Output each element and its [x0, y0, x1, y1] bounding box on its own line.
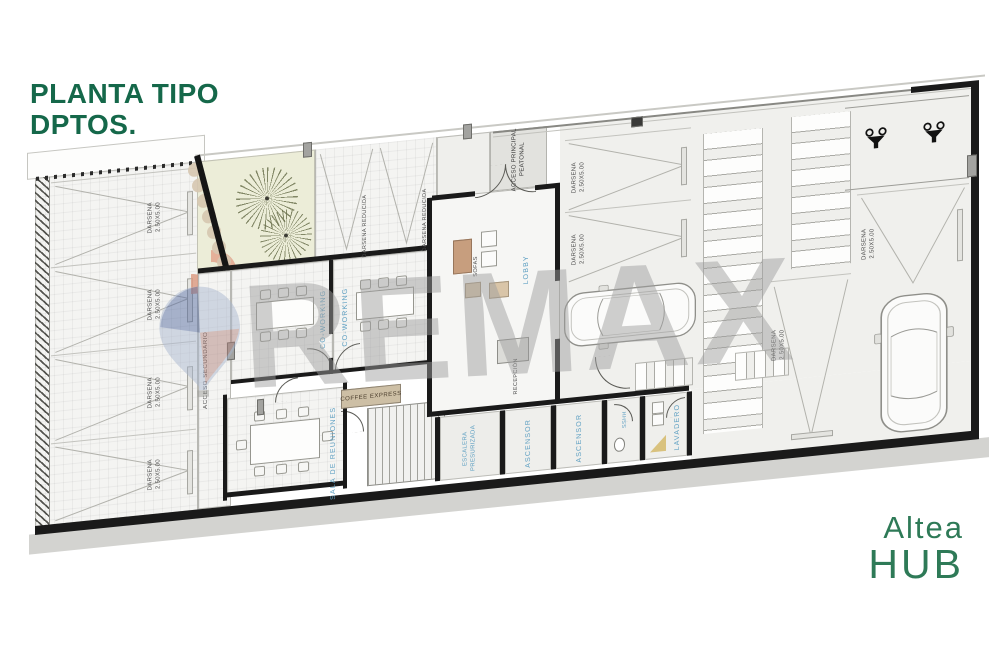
- parking-space-reduced: DARSENA REDUCIDA: [378, 139, 435, 251]
- parking-chevron: [51, 169, 196, 269]
- altea-hub-logo: Altea HUB: [868, 512, 964, 585]
- room-elevator-1: ASCENSOR: [505, 406, 551, 475]
- wall: [555, 339, 560, 404]
- room-laundry: LAVADERO: [645, 392, 687, 460]
- main-access-label: ACCESO PRINCIPALPEATONAL: [512, 127, 527, 193]
- parking-space: DARSENA2.50X5.00: [771, 273, 851, 448]
- room-pressurized-stair-label: ESCALERAPRESURIZADA: [463, 416, 478, 482]
- parking-zone-left: DARSENA2.50X5.00 DARSENA2.50X5.00 DARSEN…: [35, 161, 198, 527]
- wall: [435, 417, 440, 482]
- room-laundry-label: LAVADERO: [674, 403, 681, 450]
- wall: [687, 391, 692, 456]
- wall: [551, 405, 556, 470]
- room-meeting-label: SALA DE REUNIONES: [330, 406, 337, 500]
- door-arc: [275, 377, 298, 402]
- parking-space-label: DARSENA2.50X5.00: [862, 211, 877, 277]
- table: [356, 287, 414, 321]
- sofa: [453, 239, 472, 275]
- parking-space-label: DARSENA REDUCIDA: [422, 188, 428, 252]
- parking-space-label: DARSENA2.50X5.00: [148, 360, 163, 426]
- parking-space-label: DARSENA2.50X5.00: [148, 185, 163, 251]
- room-lobby: SOFAS LOBBY RECEPCIÓN: [430, 185, 560, 416]
- meeting-table: [250, 418, 320, 465]
- room-bathroom: SSHH: [607, 397, 640, 464]
- parking-space: DARSENA2.50X5.00: [565, 199, 691, 285]
- wall: [602, 400, 607, 465]
- ramp-hatch-column: [703, 128, 763, 434]
- parking-space-reduced: DARSENA REDUCIDA: [318, 145, 375, 257]
- parking-space: DARSENA2.50X5.00: [51, 341, 196, 445]
- parking-chevron: [51, 430, 196, 525]
- coffee-express-label: COFFEE EXPRESS: [340, 390, 401, 402]
- wall: [640, 396, 645, 461]
- ramp-hatch-column: [791, 111, 851, 269]
- room-lobby-label: LOBBY: [523, 255, 530, 285]
- room-coworking-label: CO-WORKING: [320, 289, 327, 349]
- parking-chevron: [51, 342, 196, 445]
- page-title-line1: PLANTA TIPO: [30, 78, 219, 109]
- parking-space-label: DARSENA REDUCIDA: [362, 194, 368, 258]
- retaining-wall-hatch: [35, 176, 50, 528]
- sofas-label: SOFAS: [473, 256, 479, 277]
- wall: [555, 185, 560, 282]
- room-coworking-label: CO-WORKING: [342, 287, 349, 347]
- page-title: PLANTA TIPO DPTOS.: [30, 78, 219, 141]
- table: [256, 297, 314, 331]
- floor-plan: DARSENA2.50X5.00 DARSENA2.50X5.00 DARSEN…: [35, 82, 985, 556]
- room-elevator-label: ASCENSOR: [576, 413, 583, 463]
- diagonal-wall: [197, 152, 229, 281]
- parking-chevron: [51, 254, 196, 357]
- parking-space: DARSENA2.50X5.00: [51, 168, 196, 269]
- page: PLANTA TIPO DPTOS. DARSENA2.50X5.00: [0, 0, 1000, 667]
- secondary-access-label: ACCESO SECUNDARIO: [203, 331, 209, 409]
- perimeter-wall-right: [971, 82, 979, 435]
- parking-zone-reduced: DARSENA REDUCIDA DARSENA REDUCIDA: [315, 137, 437, 261]
- wall: [223, 394, 227, 500]
- motorcycle-icon: [921, 119, 947, 148]
- altea-logo-line2: HUB: [868, 544, 964, 585]
- room-meeting: SALA DE REUNIONES: [227, 387, 345, 497]
- motorcycle-icon: [863, 125, 889, 154]
- parking-space-label: DARSENA2.50X5.00: [572, 144, 587, 210]
- wall: [329, 260, 333, 334]
- reception-label: RECEPCIÓN: [513, 358, 519, 395]
- parking-space: DARSENA2.50X5.00: [51, 429, 196, 525]
- motorcycle-parking: [845, 95, 969, 192]
- parking-space-label: DARSENA2.50X5.00: [148, 442, 163, 508]
- parking-space: DARSENA2.50X5.00: [857, 183, 969, 293]
- parking-space-label: DARSENA2.50X5.00: [772, 312, 787, 378]
- parking-space-label: DARSENA2.50X5.00: [148, 272, 163, 338]
- laundry-corner: [650, 435, 666, 453]
- parking-space: DARSENA2.50X5.00: [51, 253, 196, 357]
- parking-space-label: DARSENA2.50X5.00: [572, 216, 587, 282]
- car-icon: [873, 287, 955, 439]
- wall: [500, 410, 505, 475]
- room-elevator-label: ASCENSOR: [525, 419, 532, 469]
- armchair: [481, 250, 497, 268]
- toilet-icon: [614, 437, 625, 452]
- room-elevator-2: ASCENSOR: [556, 400, 602, 469]
- room-bathroom-label: SSHH: [622, 411, 628, 429]
- armchair: [481, 230, 497, 248]
- altea-logo-line1: Altea: [868, 512, 964, 543]
- room-pressurized-stair: ESCALERAPRESURIZADA: [440, 411, 500, 481]
